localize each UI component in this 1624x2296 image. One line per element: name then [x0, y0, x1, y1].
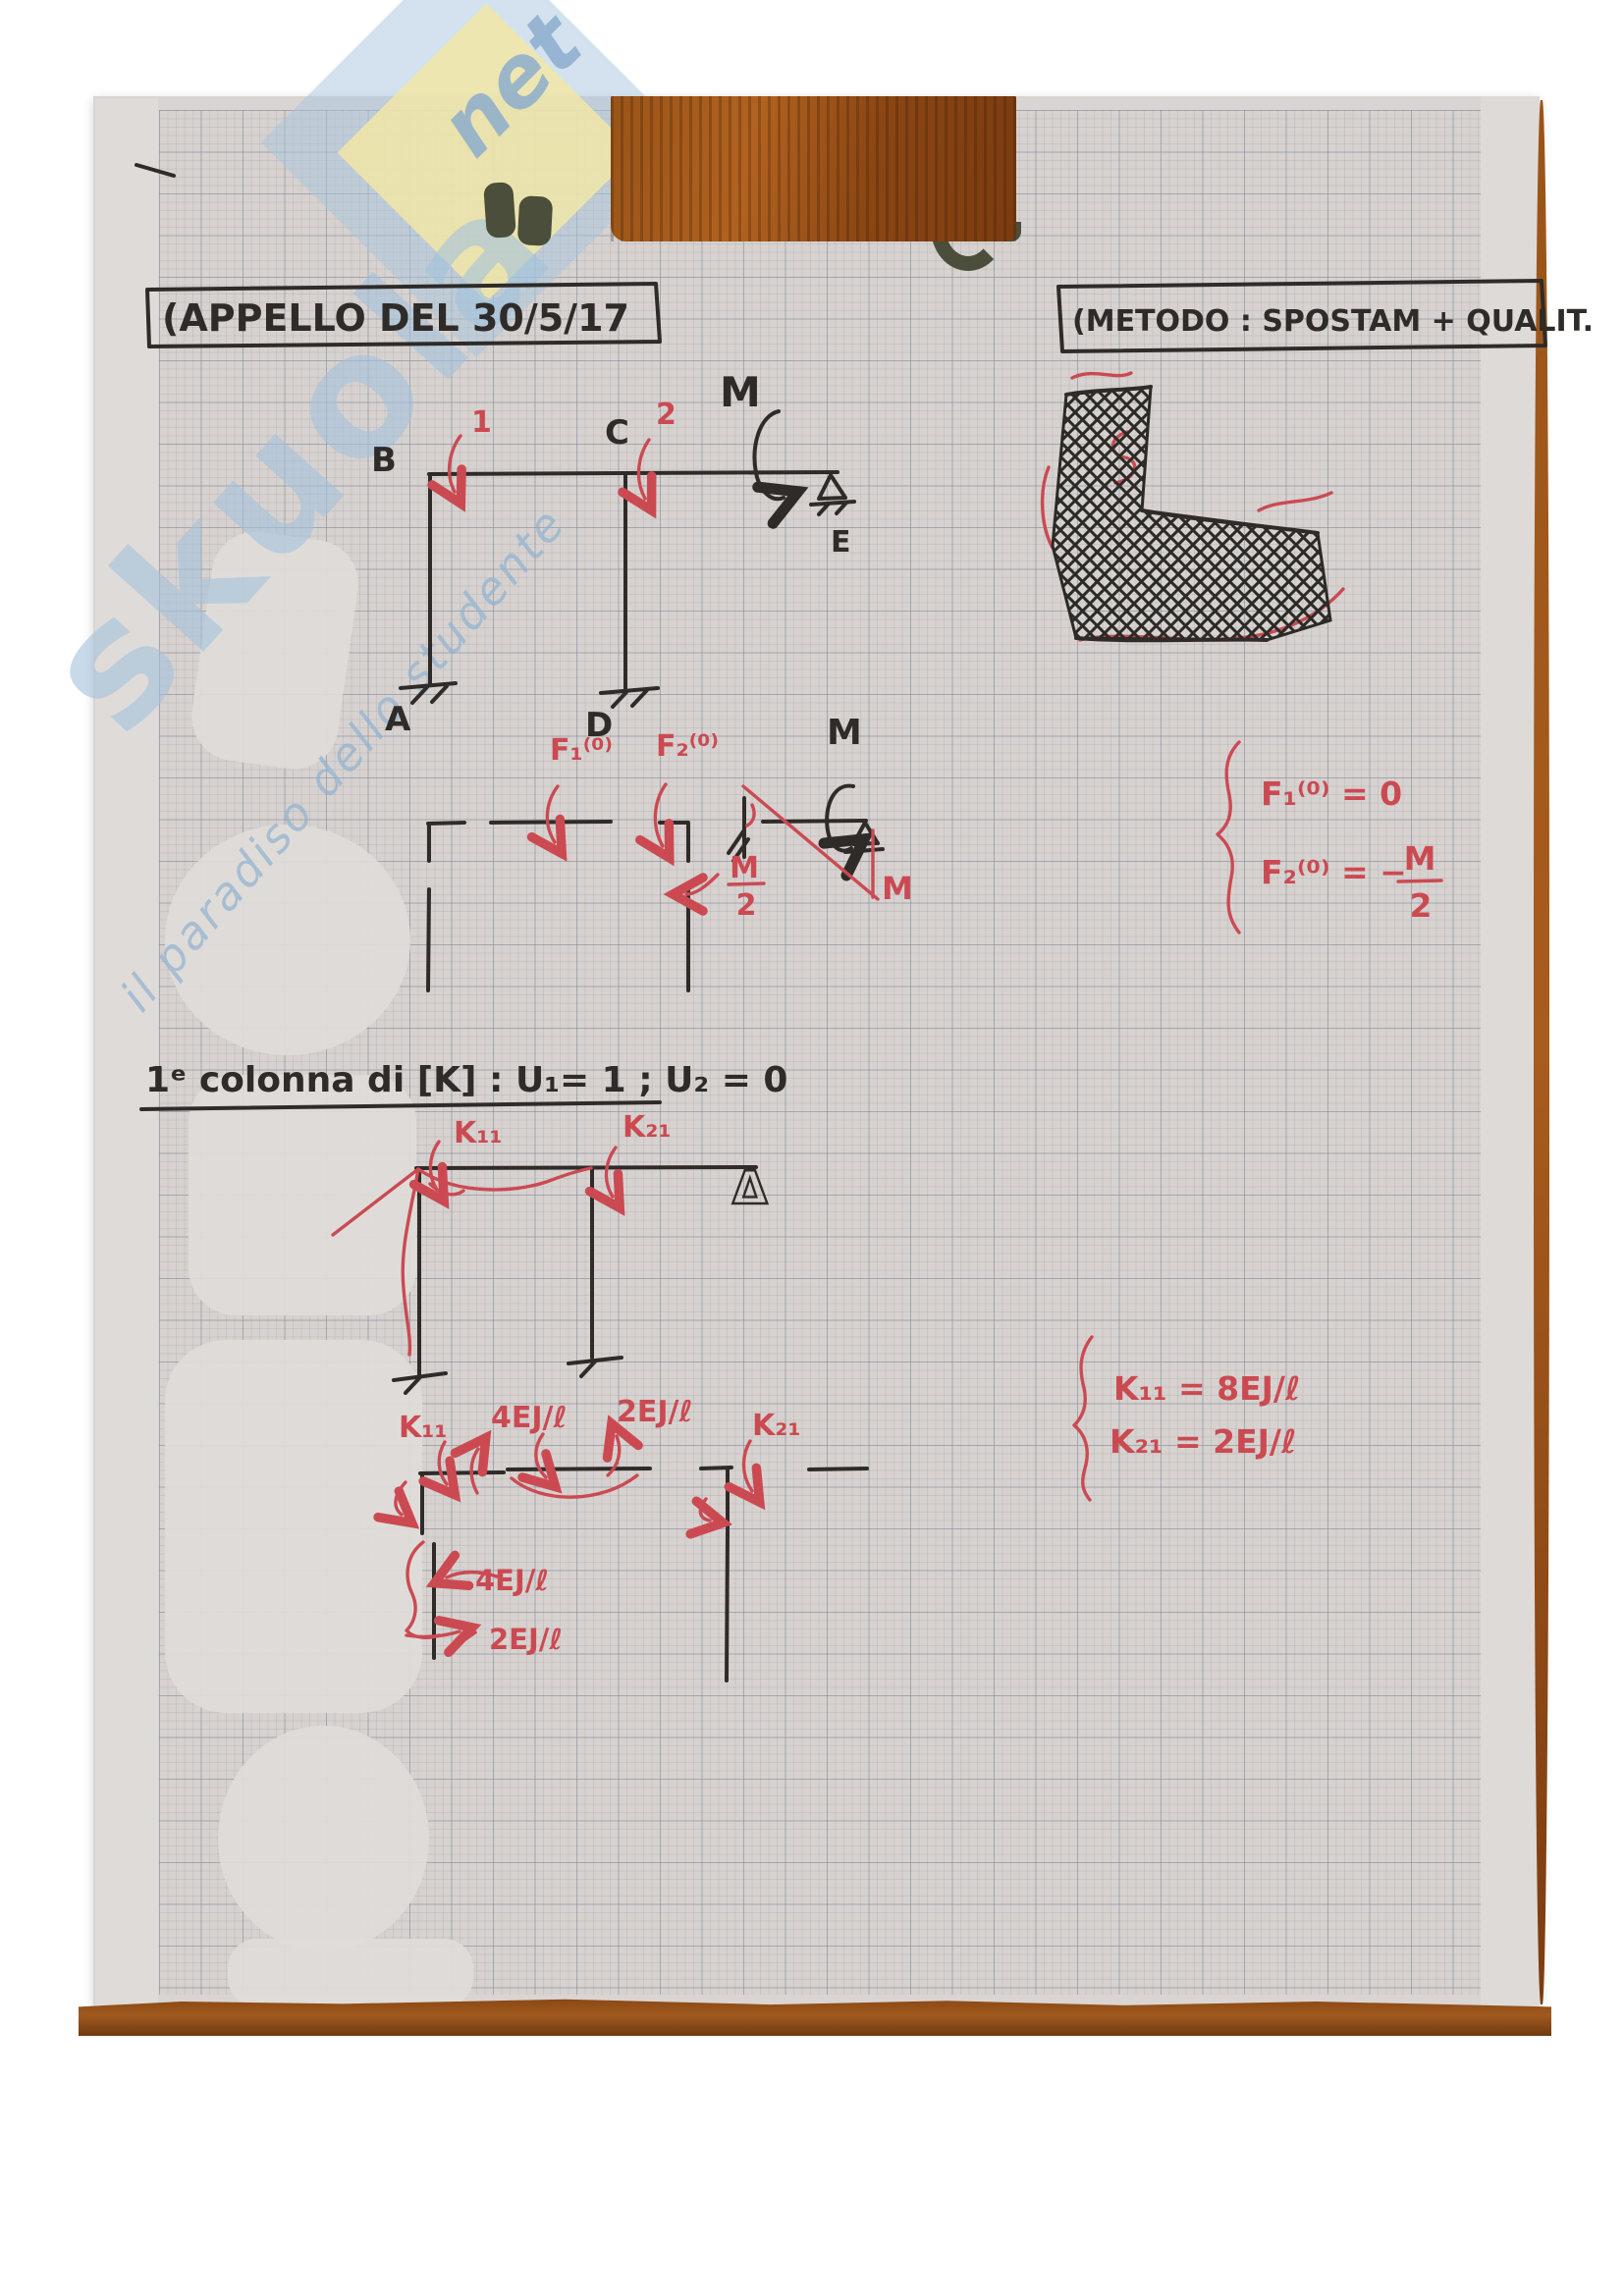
- k-equations: K₁₁ = 8EJ/ℓ K₂₁ = 2EJ/ℓ: [1074, 1337, 1301, 1500]
- deformed-shape-tangent: [333, 1169, 418, 1235]
- f2-equation-lhs: F₂⁽⁰⁾ = −: [1261, 853, 1407, 891]
- support-hatch-right: [568, 1358, 622, 1376]
- fraction-denominator: 2: [736, 888, 757, 923]
- header-left-box: (APPELLO DEL 30/5/17: [147, 284, 660, 347]
- applied-moment-arrow: [755, 411, 784, 499]
- dof1-label: 1: [471, 405, 492, 440]
- k11-equation: K₁₁ = 8EJ/ℓ: [1113, 1369, 1301, 1408]
- member-moment-diagrams: K₁₁ 4EJ/ℓ 2EJ/ℓ K₂₁ 4EJ/ℓ 2EJ/ℓ: [396, 1395, 867, 1681]
- f2-equation-denominator: 2: [1410, 886, 1433, 925]
- photo-of-handwritten-notes: skuola net il paradiso dello studente: [0, 0, 1624, 2296]
- node-label-a: A: [385, 700, 411, 739]
- crossed-out-scribble: [1043, 373, 1343, 640]
- k21-rotation-arrow: [607, 1148, 616, 1197]
- section-title: 1ᵉ colonna di [K] : U₁= 1 ; U₂ = 0: [141, 1060, 787, 1109]
- beam-moment-curve: [512, 1475, 637, 1497]
- first-column-title: 1ᵉ colonna di [K] : U₁= 1 ; U₂ = 0: [145, 1060, 787, 1100]
- f2-equation-numerator: M: [1404, 839, 1436, 878]
- method-title: (METODO : SPOSTAM + QUALIT.: [1072, 304, 1594, 339]
- label-2ej: 2EJ/ℓ: [617, 1395, 693, 1429]
- deformed-column-curve: [403, 1169, 418, 1355]
- roller-support-e: [811, 475, 854, 514]
- curly-brace: [1218, 742, 1239, 933]
- frame-structure-diagram: B C A D E M 1 2: [371, 368, 854, 745]
- half-moment-arrow: [686, 875, 718, 894]
- support-hatch-left: [394, 1373, 446, 1393]
- k11-label: K₁₁: [454, 1116, 503, 1150]
- dof2-rotation-arrow: [638, 440, 649, 499]
- moment-arrow: [827, 786, 853, 851]
- f2-label: F₂⁽⁰⁾: [656, 729, 719, 764]
- handwritten-ink-layer: (APPELLO DEL 30/5/17 (METODO : SPOSTAM +…: [0, 0, 1624, 2296]
- column-2ej-label: 2EJ/ℓ: [489, 1623, 563, 1656]
- f2-arrow: [655, 784, 666, 846]
- curly-brace: [1074, 1337, 1092, 1500]
- node-label-e: E: [831, 525, 851, 560]
- moment-diagram-label: M: [882, 870, 913, 907]
- member-k21-label: K₂₁: [752, 1409, 801, 1443]
- f1-equation: F₁⁽⁰⁾ = 0: [1261, 774, 1402, 813]
- fixed-support-d: [601, 688, 658, 707]
- k21-equation: K₂₁ = 2EJ/ℓ: [1110, 1422, 1297, 1461]
- deformed-beam-curve: [418, 1168, 591, 1190]
- pen-dash-mark: [136, 165, 174, 176]
- f1-label: F₁⁽⁰⁾: [550, 733, 613, 768]
- moment-label: M: [827, 713, 862, 753]
- node-label-c: C: [605, 413, 629, 453]
- f1-arrow: [547, 786, 558, 842]
- exam-title: (APPELLO DEL 30/5/17: [162, 296, 629, 340]
- f0-equations: F₁⁽⁰⁾ = 0 F₂⁽⁰⁾ = − M 2: [1218, 742, 1441, 933]
- node-label-b: B: [371, 441, 397, 480]
- k11-rotation-arrow: [430, 1142, 439, 1190]
- released-structure-diagram: M F₁⁽⁰⁾ F₂⁽⁰⁾ M 2 M: [428, 713, 913, 990]
- roller-support: [845, 823, 883, 862]
- header-right-box: (METODO : SPOSTAM + QUALIT.: [1058, 281, 1594, 351]
- fraction-numerator: M: [730, 851, 759, 885]
- label-4ej: 4EJ/ℓ: [491, 1401, 568, 1435]
- dof2-label: 2: [656, 398, 677, 432]
- dof1-rotation-arrow: [450, 436, 460, 492]
- roller-delta-symbol: Δ: [732, 1161, 768, 1214]
- column-4ej-label: 4EJ/ℓ: [475, 1564, 549, 1597]
- moment-label-m: M: [720, 368, 761, 416]
- k21-label: K₂₁: [623, 1110, 672, 1145]
- k-frame-diagram: Δ K₁₁ K₂₁: [333, 1110, 768, 1393]
- member-k11-label: K₁₁: [399, 1411, 448, 1445]
